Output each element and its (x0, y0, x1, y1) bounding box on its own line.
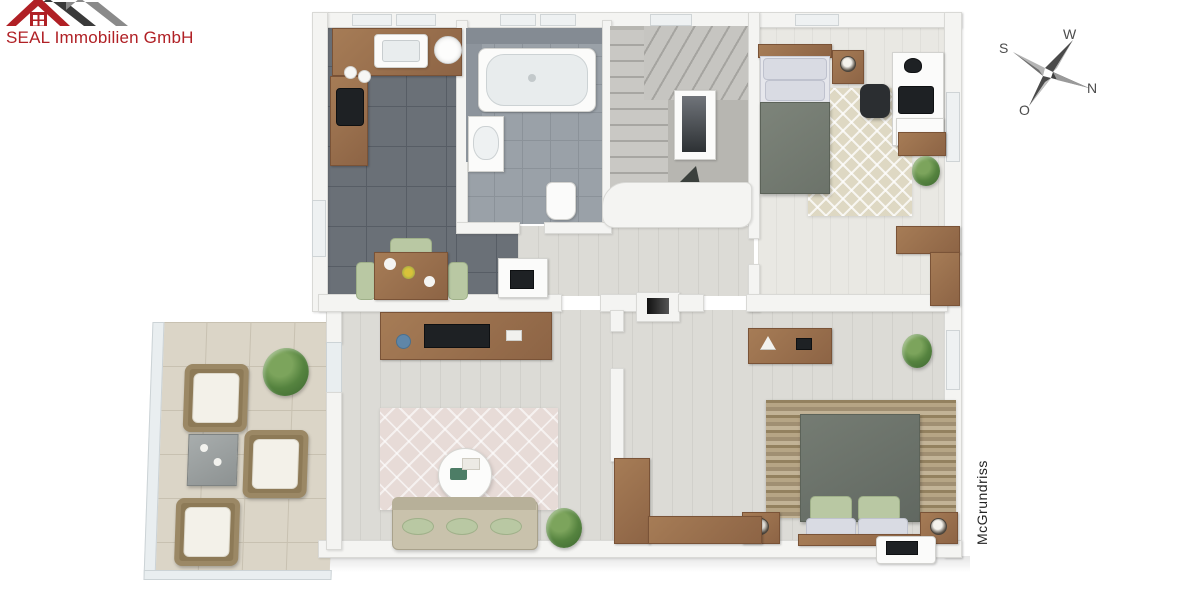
terrace (144, 322, 339, 578)
bed1-table-lamp (840, 56, 856, 72)
sofa-cushion (446, 518, 478, 535)
chimney-niche (647, 298, 669, 314)
wicker-armchair-2 (242, 430, 308, 498)
desk-monitor (898, 86, 934, 114)
bed2-lamp-right (930, 518, 947, 535)
compass-letter-n: N (1087, 80, 1097, 96)
stair-core-void (682, 96, 706, 152)
wicker-armchair-3 (174, 498, 240, 566)
chair-cushion (192, 373, 240, 423)
right-wall-window (946, 92, 960, 162)
wardrobe-bottom-h (648, 516, 762, 544)
building-shadow (330, 556, 970, 572)
round-basin (434, 36, 462, 64)
bathtub-basin (486, 54, 588, 106)
bedroom2-left-wall (610, 368, 624, 462)
bedroom-top-plant (912, 156, 940, 186)
chair-cushion (183, 507, 231, 557)
black-appliance (336, 88, 364, 126)
wardrobe-top-v (930, 252, 960, 306)
wardrobe-bottom-v (614, 458, 650, 544)
office-chair (860, 84, 890, 118)
decor-bowl (396, 334, 411, 349)
coffee-table-magazine (462, 458, 480, 470)
wardrobe-top-h (896, 226, 960, 254)
right-wall-window (946, 330, 960, 390)
living-plant (546, 508, 582, 548)
cube-side-table (187, 434, 239, 486)
bed1-pillow (763, 58, 827, 80)
compass-star-icon (995, 24, 1105, 124)
bedroom-skylight (795, 14, 839, 26)
bed1-duvet (760, 102, 830, 194)
bath-wall-tiles-top (466, 28, 602, 44)
table-plate (384, 258, 396, 270)
left-wall-window (312, 200, 326, 257)
wall-shelf (898, 132, 946, 156)
compass-rose: W S O N (995, 24, 1105, 124)
stair-flight-top (644, 26, 748, 100)
bedroom2-wall-stub (610, 310, 624, 332)
skylight-window (352, 14, 392, 26)
living-left-wall-a (326, 310, 342, 344)
desk-plant-pot (904, 58, 922, 73)
washbasin (473, 126, 499, 160)
counter-plate (358, 70, 371, 83)
dresser-item (796, 338, 812, 350)
outer-wall-left (312, 12, 328, 312)
bathtub-drain (528, 74, 536, 82)
living-left-wall-b (326, 392, 342, 550)
terrace-door (326, 342, 342, 394)
stair-banister (602, 182, 752, 228)
compass-letter-o: O (1019, 102, 1030, 118)
skylight-window (396, 14, 436, 26)
logo-roofs-icon (4, 0, 204, 30)
bathroom-bottom-wall-b (544, 222, 612, 234)
table-plate (424, 276, 435, 287)
bed1-pillow (765, 80, 825, 101)
wicker-armchair-1 (183, 364, 249, 432)
compass-letter-s: S (999, 40, 1008, 56)
sofa-cushion (490, 518, 522, 535)
decor-item (506, 330, 522, 341)
bathroom-bottom-wall-a (456, 222, 520, 234)
bathroom-window (540, 14, 576, 26)
flower-vase (402, 266, 415, 279)
floorplan-render: SEAL Immobilien GmbH (0, 0, 1200, 600)
hallway-floor (518, 226, 754, 296)
watermark: McGrundriss (974, 438, 996, 568)
middle-wall-d (746, 294, 948, 312)
tv (424, 324, 490, 348)
counter-plate (344, 66, 357, 79)
company-name: SEAL Immobilien GmbH (6, 28, 194, 48)
sofa-backrest (392, 497, 536, 510)
console-dresser (748, 328, 832, 364)
sofa-cushion (402, 518, 434, 535)
stair-window (650, 14, 692, 26)
dining-chair-left (356, 262, 376, 300)
toilet (546, 182, 576, 220)
middle-wall-c (678, 294, 704, 312)
dining-chair-right (448, 262, 468, 300)
stove-door (510, 270, 534, 289)
tray-item (886, 541, 918, 555)
terrace-glass-railing-bottom (143, 570, 331, 580)
bedroom-bottom-plant (902, 334, 932, 368)
sink-basin (382, 40, 420, 62)
compass-letter-w: W (1063, 26, 1076, 42)
bathroom-window (500, 14, 536, 26)
chair-cushion (252, 439, 300, 489)
company-logo: SEAL Immobilien GmbH (4, 0, 274, 52)
